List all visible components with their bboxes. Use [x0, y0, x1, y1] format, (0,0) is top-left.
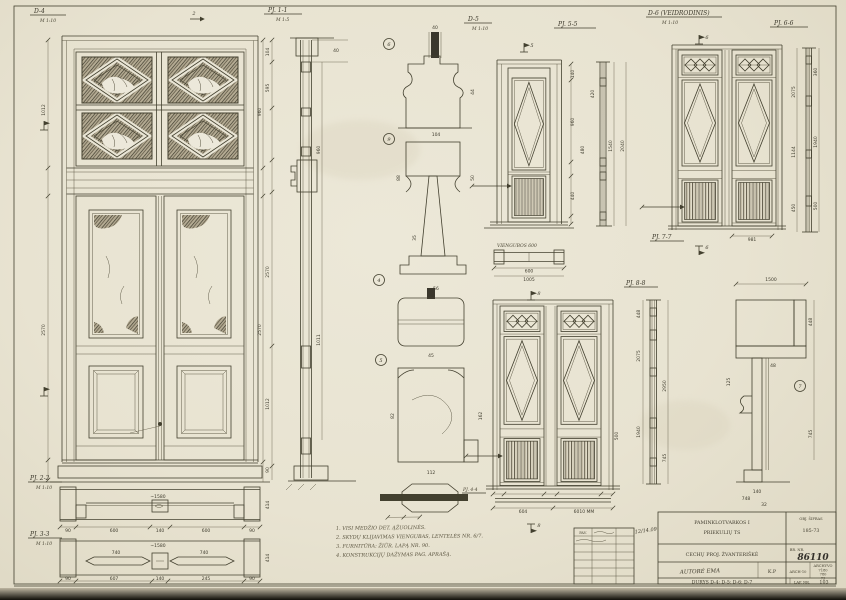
- section-strip-6-6: 2075 1144 450 360 1940 500: [791, 48, 819, 232]
- corner-plan-detail: 1500 7 448 745 48 125 140 748 32: [726, 277, 814, 508]
- svg-text:D-5: D-5: [467, 16, 479, 23]
- detail-circle-6: 6: [384, 39, 395, 50]
- svg-text:420: 420: [590, 90, 596, 99]
- svg-text:414: 414: [265, 554, 271, 563]
- notes: 1. VISI MEDŽIO DET. ĄŽUOLINĖS. 2. SKYDŲ …: [335, 514, 484, 559]
- svg-text:162: 162: [478, 412, 484, 421]
- section-marker-2: 2: [190, 11, 204, 19]
- svg-text:2570: 2570: [257, 324, 263, 336]
- svg-text:90: 90: [249, 528, 255, 534]
- d4-title: D-4: [33, 8, 45, 15]
- svg-text:~1580: ~1580: [150, 543, 165, 549]
- section-flag: [527, 524, 537, 533]
- svg-text:6: 6: [705, 245, 709, 251]
- detail-circle-7: 7: [795, 381, 806, 392]
- elevation-d4: D-4 M 1:10 2: [30, 8, 270, 482]
- svg-text:7: 7: [798, 384, 802, 390]
- section-flag: [40, 387, 50, 396]
- svg-text:M 1:10: M 1:10: [35, 541, 52, 547]
- object-name: CECHŲ PROJ. ŽVANTERIŠKĖ: [686, 550, 759, 558]
- scan-edge-shadow: [0, 588, 846, 600]
- note-1: 1. VISI MEDŽIO DET. ĄŽUOLINĖS.: [336, 523, 426, 532]
- svg-text:1005: 1005: [523, 277, 535, 283]
- svg-text:448: 448: [808, 318, 814, 327]
- svg-text:PJ. 3-3: PJ. 3-3: [29, 531, 50, 538]
- svg-text:VIENGUBOS 600: VIENGUBOS 600: [497, 243, 537, 249]
- svg-text:245: 245: [202, 576, 211, 582]
- plan-strip-d5: VIENGUBOS 600 600 1005: [492, 243, 566, 283]
- section-flag: [40, 121, 50, 130]
- svg-text:PJ. 5-5: PJ. 5-5: [557, 21, 578, 28]
- svg-text:414: 414: [265, 501, 271, 510]
- org-line2: PRIEKULIŲ TS: [704, 530, 741, 536]
- svg-text:600: 600: [525, 269, 534, 275]
- svg-text:M 1:10: M 1:10: [35, 485, 52, 491]
- svg-text:500: 500: [813, 202, 819, 211]
- svg-text:1540: 1540: [608, 140, 614, 152]
- svg-text:140: 140: [753, 489, 762, 495]
- svg-text:500: 500: [614, 432, 620, 441]
- svg-text:600: 600: [202, 528, 211, 534]
- detail-circle-4: 4: [374, 275, 385, 286]
- svg-text:4: 4: [376, 278, 380, 284]
- svg-text:1500: 1500: [765, 277, 777, 283]
- svg-text:2075: 2075: [636, 350, 642, 362]
- d4-left-leaf: [76, 196, 156, 460]
- section-flag: [520, 43, 530, 52]
- svg-text:PJ. 1-1: PJ. 1-1: [267, 7, 287, 14]
- drawing-canvas: D-4 M 1:10 2: [0, 0, 846, 600]
- elevation-lower: 8 604 6010 MM 500 8: [464, 291, 620, 533]
- svg-text:595: 595: [265, 84, 271, 93]
- door-knob: [158, 422, 162, 426]
- svg-text:1940: 1940: [813, 136, 819, 148]
- section-flag: [695, 35, 705, 44]
- svg-text:140: 140: [156, 576, 165, 582]
- d4-right-leaf: [164, 196, 244, 460]
- svg-text:D-6 (VEIDRODINIS): D-6 (VEIDRODINIS): [647, 10, 710, 17]
- moulding-details: 6 40 44 104 9 50 88 35 56: [374, 25, 487, 512]
- note-3: 3. FURNITŪRA: ŽIŪR. LAPĄ NR. 90.: [336, 541, 430, 550]
- svg-text:~1580: ~1580: [150, 494, 165, 500]
- obj-value: 185-73: [803, 528, 820, 534]
- note-2: 2. SKYDŲ KLIJAVIMAS VIENGUBAS, LENTELĖS …: [335, 532, 484, 541]
- svg-text:6: 6: [705, 35, 709, 41]
- section-strip-5-5: 1540 2040 420: [590, 62, 626, 226]
- detail-circle-9: 9: [384, 134, 395, 145]
- stage: K.P: [768, 569, 777, 575]
- svg-text:6010 MM: 6010 MM: [574, 509, 595, 515]
- svg-text:1011: 1011: [316, 334, 322, 346]
- svg-text:112: 112: [427, 470, 436, 476]
- svg-text:140: 140: [156, 528, 165, 534]
- svg-text:360: 360: [813, 68, 819, 77]
- svg-text:140: 140: [570, 70, 576, 79]
- svg-text:960: 960: [316, 146, 322, 155]
- svg-text:1012: 1012: [41, 104, 47, 116]
- author: AUTORĖ EMA: [679, 567, 721, 575]
- svg-text:5: 5: [530, 43, 533, 49]
- svg-text:2570: 2570: [265, 266, 271, 278]
- svg-text:981: 981: [748, 237, 757, 243]
- svg-text:104: 104: [432, 132, 441, 138]
- rev-header: ARCHYVO: [812, 564, 832, 568]
- elevation-d6: D-6 (VEIDRODINIS) M 1:10 PJ. 6-6 6 6 PJ.…: [640, 10, 819, 255]
- obj-label: OBJ. ŠIFRAS: [799, 516, 823, 521]
- svg-text:82: 82: [390, 413, 396, 419]
- svg-text:M 1:5: M 1:5: [275, 17, 289, 23]
- svg-text:448: 448: [636, 310, 642, 319]
- detail-circle-5: 5: [376, 355, 387, 366]
- svg-text:PJ. 7-7: PJ. 7-7: [651, 234, 672, 241]
- svg-text:604: 604: [519, 509, 528, 515]
- svg-text:9: 9: [387, 137, 391, 143]
- note-4: 4. KONSTRUKCIJŲ DAŽYMAS PAG. APRAŠĄ.: [335, 550, 451, 559]
- content-row: DURYS D-4; D-5; D-6; D-7: [692, 580, 753, 586]
- section-flag: [695, 246, 705, 255]
- svg-text:6: 6: [387, 42, 391, 48]
- date-scrawl: 12/14.09: [634, 526, 658, 535]
- svg-text:35: 35: [412, 235, 418, 241]
- svg-text:90: 90: [65, 576, 71, 582]
- svg-text:740: 740: [112, 550, 121, 556]
- svg-text:PJ. 6-6: PJ. 6-6: [773, 20, 794, 27]
- right-section-strips: PJ. 8-8 448 2075 1940 2950 745: [624, 280, 668, 484]
- svg-text:8: 8: [537, 291, 540, 297]
- svg-text:44: 44: [470, 89, 476, 95]
- svg-text:90: 90: [249, 576, 255, 582]
- svg-text:M 1:10: M 1:10: [471, 26, 488, 32]
- svg-text:PAV.: PAV.: [579, 531, 587, 535]
- svg-text:40: 40: [432, 25, 438, 31]
- svg-text:960: 960: [257, 108, 263, 117]
- svg-text:M 1:10: M 1:10: [661, 20, 678, 26]
- title-block: PAV. 12/14.09 PAMINKLOTVARKOS I PRIEKULI…: [574, 512, 836, 586]
- svg-text:PJ. 8-8: PJ. 8-8: [625, 280, 646, 287]
- svg-text:90: 90: [65, 528, 71, 534]
- svg-text:745: 745: [808, 430, 814, 439]
- svg-text:88: 88: [396, 175, 402, 181]
- drawing-sheet: D-4 M 1:10 2: [0, 0, 846, 600]
- brnr-label: BR. NR.: [790, 548, 805, 552]
- svg-text:2: 2: [191, 11, 195, 17]
- svg-text:40: 40: [333, 48, 339, 54]
- svg-text:2570: 2570: [41, 324, 47, 336]
- vertical-section-1-1: PJ. 1-1 M 1:5 104 595 2570 101: [264, 7, 356, 490]
- drawing-number: 86110: [797, 553, 829, 563]
- svg-text:440: 440: [570, 192, 576, 201]
- svg-text:740: 740: [200, 550, 209, 556]
- svg-text:48: 48: [770, 363, 776, 369]
- svg-text:PJ. 4-4: PJ. 4-4: [462, 487, 478, 493]
- svg-text:607: 607: [110, 576, 119, 582]
- svg-text:2075: 2075: [791, 86, 797, 98]
- lap-label: LAP. NR.: [794, 581, 810, 585]
- d4-dim-chains: 1012 2570 960 2570: [41, 38, 265, 482]
- svg-text:1940: 1940: [636, 426, 642, 438]
- svg-text:2950: 2950: [662, 380, 668, 392]
- svg-text:745: 745: [662, 454, 668, 463]
- transom-leaded-glass: [76, 52, 244, 166]
- plan-section-2-2: PJ. 2-2 M 1:10 ~1580 90 600 140 600 90 4…: [28, 475, 271, 534]
- frieze-band: [67, 168, 254, 194]
- plan-section-3-3: PJ. 3-3 M 1:10 ~1580 740 740 90 607 140 …: [28, 531, 271, 583]
- svg-text:PJ. 2-2: PJ. 2-2: [29, 475, 50, 482]
- svg-text:2040: 2040: [620, 140, 626, 152]
- svg-text:90: 90: [265, 467, 271, 473]
- svg-text:748: 748: [742, 496, 751, 502]
- svg-text:450: 450: [791, 204, 797, 213]
- code: ARCH-10: [789, 570, 808, 574]
- org-line1: PAMINKLOTVARKOS I: [694, 520, 750, 526]
- svg-text:960: 960: [570, 118, 576, 127]
- svg-text:45: 45: [428, 353, 434, 359]
- svg-text:125: 125: [726, 378, 732, 387]
- section-flag: [527, 291, 537, 300]
- revision-grid: PAV.: [574, 528, 634, 584]
- svg-text:480: 480: [580, 146, 586, 155]
- svg-text:50: 50: [470, 175, 476, 181]
- lap-value: 103: [819, 580, 828, 586]
- svg-text:1144: 1144: [791, 146, 797, 158]
- svg-text:600: 600: [110, 528, 119, 534]
- svg-text:8: 8: [537, 523, 540, 529]
- svg-text:5: 5: [379, 358, 382, 364]
- svg-text:1012: 1012: [265, 398, 271, 410]
- elevation-d5: D-5 M 1:10 PJ. 5-5 5 140 960 440: [464, 16, 626, 283]
- d4-scale: M 1:10: [39, 18, 56, 24]
- svg-text:104: 104: [265, 48, 271, 57]
- svg-text:32: 32: [761, 502, 767, 508]
